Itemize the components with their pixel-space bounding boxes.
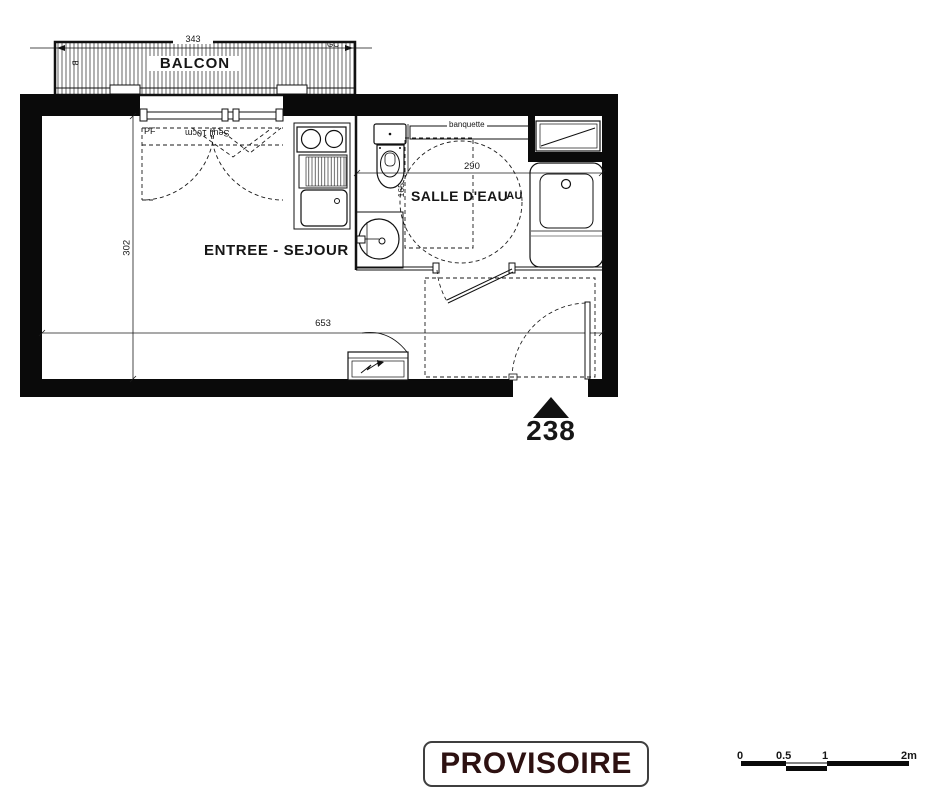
washbasin-icon	[356, 212, 403, 268]
bathroom-label-artifact: AU	[506, 190, 523, 202]
kitchenette	[294, 123, 350, 229]
pf-swing-arc	[142, 128, 214, 200]
bathroom-width-dimension-label: 290	[462, 162, 482, 172]
scale-tick-05: 0.5	[776, 751, 791, 762]
scale-tick-1: 1	[822, 751, 828, 762]
dimension-line-653	[39, 330, 605, 336]
balcony-dimension-label: 343	[173, 35, 213, 44]
stove-icon	[297, 127, 346, 152]
pf-window	[140, 109, 283, 121]
living-width-dimension-label: 653	[306, 319, 340, 329]
hallway-clearance	[425, 278, 595, 377]
pf-swing-arc	[211, 128, 283, 200]
bathroom-label: SALLE D'EAUAU	[411, 189, 523, 204]
bench-label: banquette	[447, 121, 487, 129]
scale-bar	[741, 761, 909, 771]
pf-window-label: PF	[144, 127, 156, 136]
scale-tick-0: 0	[737, 751, 743, 762]
unit-number: 238	[519, 417, 583, 445]
balcony-tag-right: GC	[327, 41, 339, 49]
drainer-icon	[299, 155, 347, 188]
bathroom-door	[437, 269, 513, 303]
living-height-dimension-label: 302	[122, 233, 132, 263]
bathroom-height-dimension-label: 165	[397, 177, 406, 203]
balcony-scupper	[110, 85, 140, 94]
threshold-label: Seuil 10cm	[185, 128, 230, 137]
shower-icon	[530, 163, 603, 267]
bathroom-window	[536, 121, 600, 151]
scale-tick-2m: 2m	[901, 751, 917, 762]
provisoire-stamp: PROVISOIRE	[423, 741, 649, 787]
floor-plan-page: BALCON 343 B GC PF Seuil 10cm banquette …	[0, 0, 948, 800]
balcony-tag-left: B	[71, 60, 79, 65]
bathroom-label-text: SALLE D'EAU	[411, 188, 508, 204]
balcony-label: BALCON	[149, 56, 241, 71]
entrance-door	[509, 302, 590, 380]
balcony-scupper	[277, 85, 307, 94]
living-room-label: ENTREE - SEJOUR	[204, 243, 349, 258]
kitchen-sink-icon	[301, 190, 347, 226]
facade-window-unit	[348, 332, 408, 380]
